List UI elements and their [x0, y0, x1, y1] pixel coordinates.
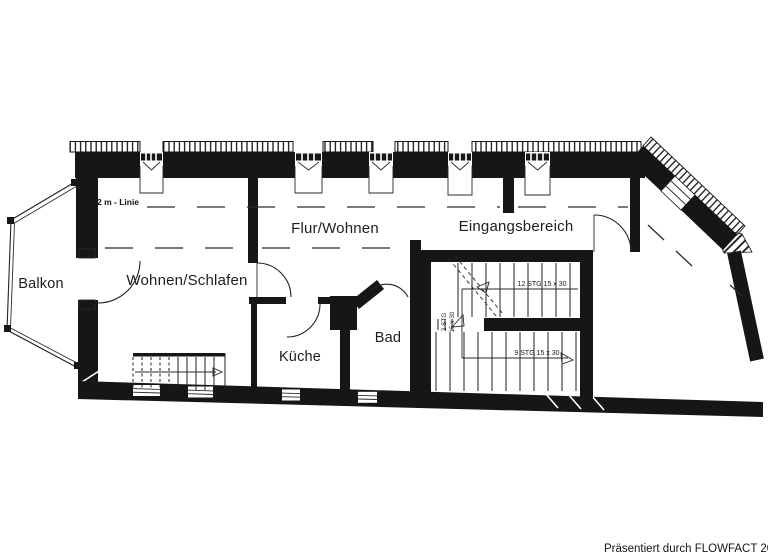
room-door-wohnen [257, 263, 291, 297]
bottom-window [282, 390, 300, 401]
stair-treads-lower [436, 332, 576, 391]
stair-lower-label: 9 STG 15 x 30 [514, 350, 559, 357]
room-label-bad: Bad [375, 330, 401, 346]
bottom-window [133, 385, 160, 396]
balcony-railing [4, 179, 81, 369]
stair-landing-label-line2: 15 x 30 [449, 311, 456, 332]
diagonal-wall [629, 137, 752, 253]
room-label-balkon: Balkon [18, 276, 64, 292]
right-wall [734, 252, 757, 360]
room-label-flur-wohnen: Flur/Wohnen [291, 220, 379, 237]
room-label-eingangsbereich: Eingangsbereich [459, 218, 574, 235]
bottom-window [358, 392, 377, 403]
eaves-hatch-strip [70, 142, 641, 153]
floorplan-page: Balkon Wohnen/Schlafen Flur/Wohnen Einga… [0, 0, 768, 560]
bottom-window [188, 387, 213, 398]
room-door-kueche [287, 304, 320, 337]
stair-treads-upper [458, 263, 570, 317]
height-line-label: 2 m - Linie [97, 197, 139, 207]
floorplan-drawing: Balkon Wohnen/Schlafen Flur/Wohnen Einga… [0, 0, 768, 560]
stair-upper-label: 12 STG 15 x 30 [517, 281, 566, 288]
room-label-wohnen-schlafen: Wohnen/Schlafen [126, 272, 247, 289]
footer-credit: Präsentiert durch FLOWFACT 20 [604, 543, 768, 555]
room-label-kueche: Küche [279, 349, 321, 365]
entrance-door [594, 215, 631, 252]
stair-landing-label-line1: 2 STG [441, 313, 448, 331]
left-wall [76, 152, 99, 388]
